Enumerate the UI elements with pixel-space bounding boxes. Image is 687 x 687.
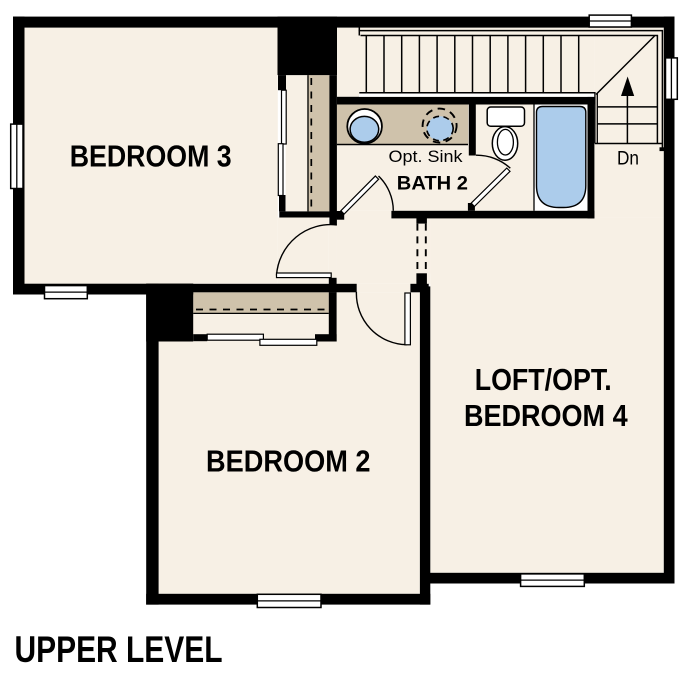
svg-text:Dn: Dn [617, 149, 639, 170]
svg-text:Opt. Sink: Opt. Sink [389, 148, 464, 166]
svg-text:BEDROOM 2: BEDROOM 2 [206, 444, 371, 479]
svg-text:BATH 2: BATH 2 [397, 174, 468, 195]
svg-text:BEDROOM 4: BEDROOM 4 [464, 398, 628, 433]
svg-text:LOFT/OPT.: LOFT/OPT. [475, 362, 612, 397]
svg-text:BEDROOM 3: BEDROOM 3 [70, 138, 232, 173]
svg-text:UPPER LEVEL: UPPER LEVEL [15, 629, 223, 670]
